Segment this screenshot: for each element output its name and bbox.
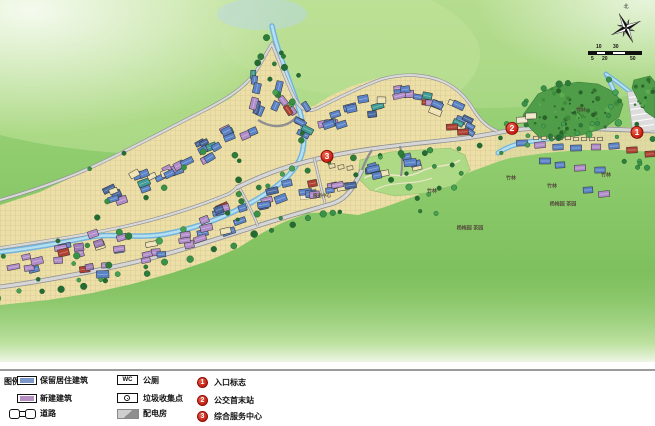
wc-icon: WC [117, 375, 138, 385]
village-plan-page: 竹林 竹林 竹林 竹林 竹林 杨梅园 茶园 杨梅园 茶园 服务中心 1 2 3 … [0, 0, 655, 426]
region-label: 杨梅园 茶园 [550, 201, 576, 208]
legend-label-new: 新建建筑 [40, 393, 72, 404]
legend-label-power: 配电房 [143, 408, 167, 419]
power-room-icon [117, 409, 139, 419]
map-marker-service-center: 3 [321, 150, 334, 163]
region-label: 竹林 [601, 172, 611, 179]
region-label: 杨梅园 茶园 [457, 225, 483, 232]
village-map-artwork [0, 0, 655, 362]
region-label: 服务中心 [313, 193, 331, 199]
legend-panel: 图例 保留居住建筑 新建建筑 道路 WC 公厕 垃圾收集点 配电房 1 入口标志… [0, 362, 655, 426]
legend-divider [0, 369, 655, 371]
road-icon [9, 408, 37, 419]
legend-label-road: 道路 [40, 408, 56, 419]
region-label: 竹林 [576, 107, 586, 114]
legend-marker-1: 1 [197, 377, 208, 388]
legend-label-bus: 公交首末站 [214, 395, 254, 406]
region-label: 竹林 [547, 183, 557, 190]
scale-number: 5 [591, 56, 594, 62]
compass-north-label: 北 [623, 3, 628, 10]
scale-number: 10 [596, 44, 602, 50]
scale-number: 50 [630, 56, 636, 62]
scale-number: 30 [613, 44, 619, 50]
region-label: 竹林 [427, 188, 437, 195]
legend-marker-2: 2 [197, 395, 208, 406]
legend-label-toilet: 公厕 [143, 375, 159, 386]
scale-bar-segments [588, 51, 642, 55]
legend-label-entrance: 入口标志 [214, 377, 246, 388]
retained-building-swatch [17, 376, 37, 385]
map-marker-bus-terminal: 2 [506, 122, 519, 135]
new-building-swatch [17, 394, 37, 403]
region-label: 竹林 [506, 175, 516, 182]
legend-label-garbage: 垃圾收集点 [143, 393, 183, 404]
legend-marker-3: 3 [197, 411, 208, 422]
legend-label-retained: 保留居住建筑 [40, 375, 88, 386]
scale-number: 20 [602, 56, 608, 62]
scale-bar: 10 30 5 20 50 [588, 44, 646, 64]
garbage-icon [117, 393, 138, 403]
map-marker-entrance: 1 [631, 126, 644, 139]
legend-label-service: 综合服务中心 [214, 411, 262, 422]
